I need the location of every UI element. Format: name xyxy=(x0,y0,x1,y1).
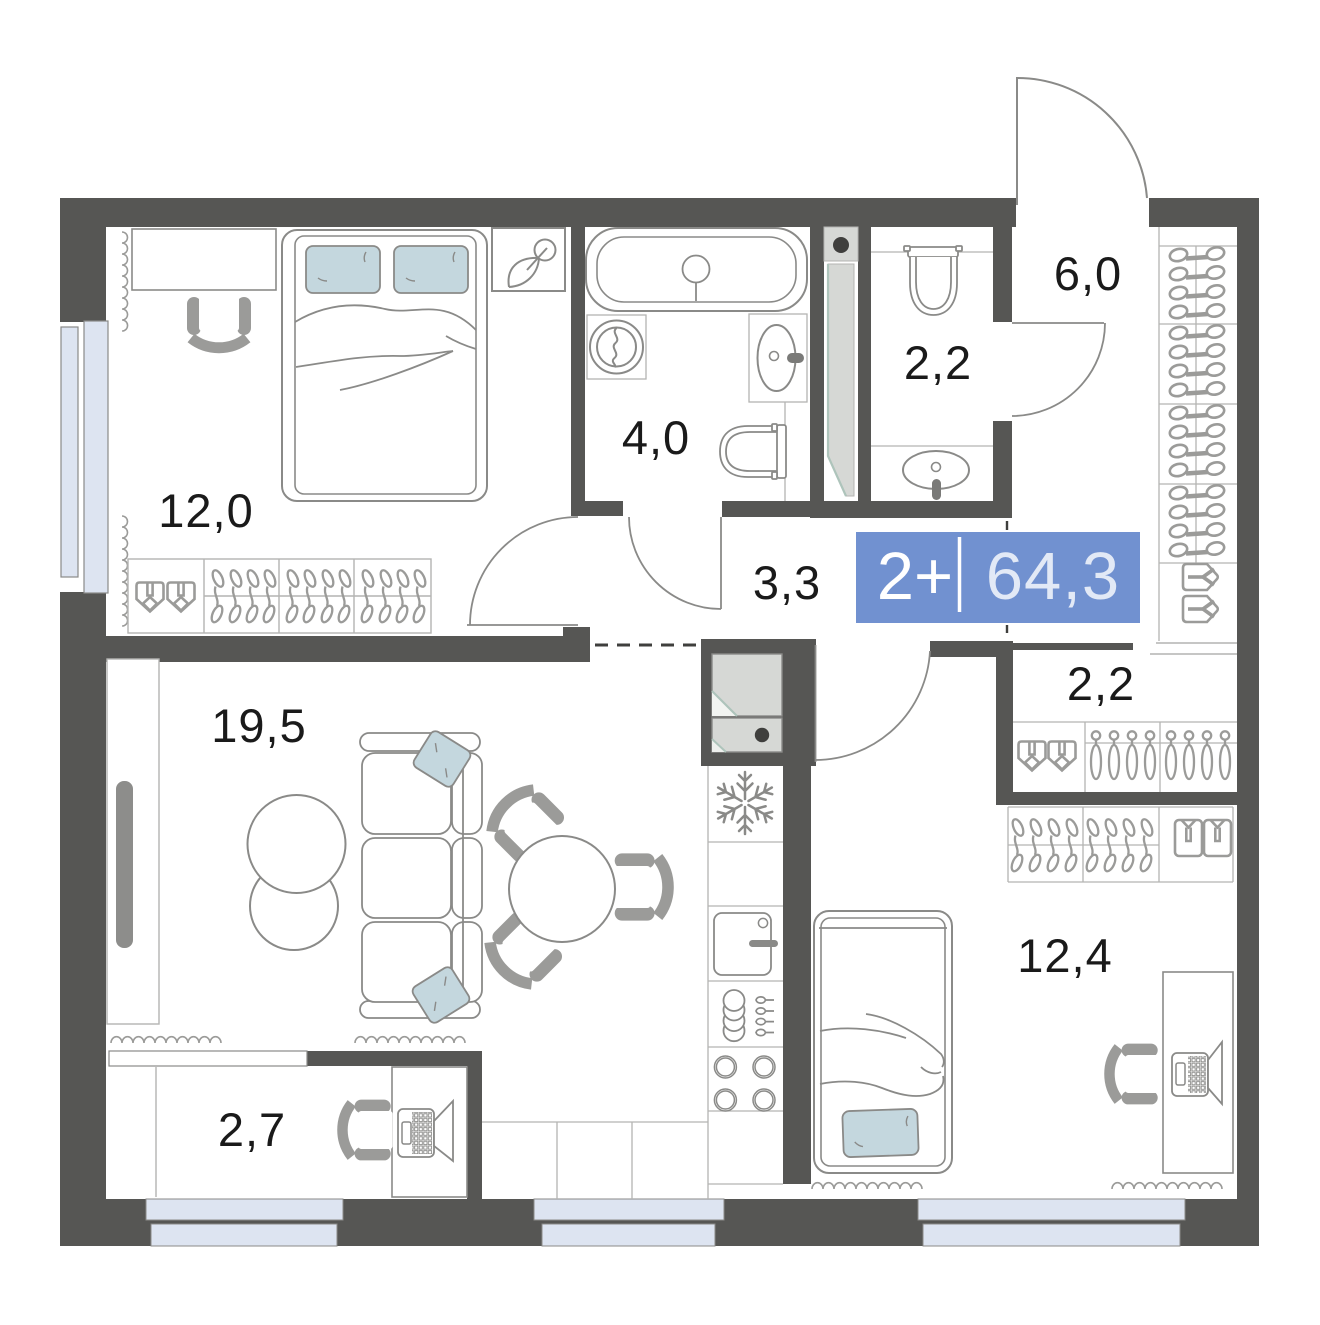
svg-text:12,0: 12,0 xyxy=(158,484,253,537)
svg-text:2,7: 2,7 xyxy=(218,1103,286,1156)
svg-text:12,4: 12,4 xyxy=(1017,929,1112,982)
svg-text:3,3: 3,3 xyxy=(753,556,821,609)
svg-text:64,3: 64,3 xyxy=(986,539,1120,614)
svg-text:2+: 2+ xyxy=(877,539,953,614)
svg-text:2,2: 2,2 xyxy=(904,336,972,389)
svg-text:2,2: 2,2 xyxy=(1067,657,1135,710)
svg-text:4,0: 4,0 xyxy=(622,411,690,464)
svg-text:6,0: 6,0 xyxy=(1054,247,1122,300)
svg-text:19,5: 19,5 xyxy=(211,699,306,752)
